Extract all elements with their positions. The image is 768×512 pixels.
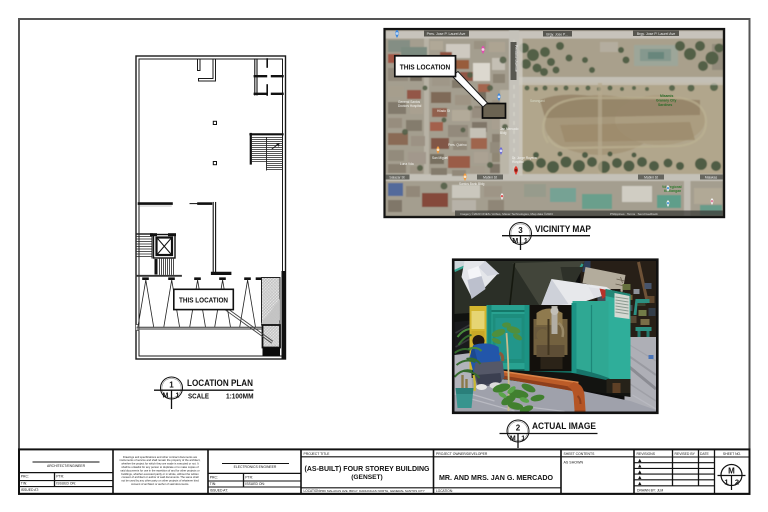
svg-text:Drawings and specifications an: Drawings and specifications and other co… [123, 455, 198, 459]
svg-text:M: M [512, 238, 518, 245]
svg-text:Hospital: Hospital [512, 160, 524, 164]
svg-text:PTR:: PTR: [245, 475, 253, 479]
svg-text:TIN:: TIN: [210, 482, 216, 486]
svg-text:THIS LOCATION: THIS LOCATION [400, 62, 451, 71]
svg-text:1: 1 [169, 381, 174, 390]
svg-text:Santos Bank Bldg: Santos Bank Bldg [459, 182, 485, 186]
svg-text:LOCATION PLAN: LOCATION PLAN [187, 378, 253, 389]
svg-text:Pres. Quirino: Pres. Quirino [448, 143, 467, 147]
svg-text:TIN:: TIN: [21, 482, 27, 486]
svg-text:Malakas: Malakas [705, 176, 718, 180]
svg-text:DATE: DATE [700, 452, 710, 456]
svg-text:Luna Vda: Luna Vda [400, 162, 414, 166]
svg-text:Pendatun Avenue: Pendatun Avenue [514, 45, 518, 72]
svg-text:2: 2 [516, 424, 521, 433]
svg-text:Bldg: Bldg [500, 131, 507, 135]
svg-text:PRK MALAKAS AVE. BRGY. DADIANG: PRK MALAKAS AVE. BRGY. DADIANGAS NORTH, … [320, 489, 425, 493]
svg-text:San Miguel: San Miguel [432, 156, 448, 160]
svg-text:REVISIONS: REVISIONS [637, 452, 656, 456]
svg-text:SHEET NO.: SHEET NO. [723, 452, 741, 456]
svg-text:PRC:: PRC: [21, 475, 29, 479]
svg-text:Brgy. Jose P...: Brgy. Jose P... [546, 32, 567, 36]
svg-text:Mabini St: Mabini St [644, 176, 658, 180]
svg-text:ISSUED ON:: ISSUED ON: [56, 482, 76, 486]
svg-text:LOCATION:: LOCATION: [304, 489, 321, 493]
svg-text:1: 1 [524, 238, 528, 245]
svg-text:ACTUAL IMAGE: ACTUAL IMAGE [532, 421, 596, 431]
svg-text:DRAWN BY: JLM: DRAWN BY: JLM [637, 489, 663, 493]
svg-text:(GENSET): (GENSET) [351, 474, 383, 481]
svg-text:PTR:: PTR: [56, 475, 64, 479]
svg-text:consent of architect or author: consent of architect or author of said d… [131, 482, 189, 486]
svg-text:not be used by any other party: not be used by any other party on other … [121, 479, 199, 483]
svg-text:THIS LOCATION: THIS LOCATION [179, 297, 228, 304]
svg-text:Philippines Terms Send fee: Philippines Terms Send feedback [610, 212, 658, 216]
svg-text:Salazar St: Salazar St [389, 176, 404, 180]
svg-text:SCALE: SCALE [188, 392, 209, 401]
svg-text:whether the project for which: whether the project for which they are m… [121, 462, 198, 466]
svg-text:PROJECT OWNER/DEVELOPER: PROJECT OWNER/DEVELOPER [436, 452, 488, 456]
svg-text:Sarangani: Sarangani [530, 99, 545, 103]
svg-text:ELECTRONICS ENGINEER: ELECTRONICS ENGINEER [234, 465, 277, 469]
svg-text:buildings, whether executed pa: buildings, whether executed partly or in… [121, 472, 199, 476]
svg-text:AS SHOWN: AS SHOWN [564, 461, 584, 465]
svg-text:Sardines: Sardines [658, 103, 672, 107]
svg-text:SHEET CONTENTS: SHEET CONTENTS [564, 452, 596, 456]
svg-text:Doctors Hospital: Doctors Hospital [398, 104, 422, 108]
svg-text:shall be unlawful for any pers: shall be unlawful for any person to dupl… [121, 465, 198, 469]
svg-text:PRC:: PRC: [210, 475, 218, 479]
svg-text:Kalilangan: Kalilangan [664, 189, 681, 193]
svg-text:Hilado St: Hilado St [437, 109, 450, 113]
svg-text:said documents for use in the: said documents for use in the repetition… [120, 468, 199, 472]
svg-text:Granary City: Granary City [656, 99, 676, 103]
svg-text:Brgy. Jose P. Laurel Ave: Brgy. Jose P. Laurel Ave [637, 32, 676, 36]
svg-text:1: 1 [521, 436, 525, 443]
svg-text:ISSUED AT:: ISSUED AT: [21, 488, 39, 492]
svg-text:Misamis: Misamis [660, 94, 673, 98]
svg-text:ARCHITECT/ENGINEER: ARCHITECT/ENGINEER [47, 464, 86, 468]
svg-text:Mabini St: Mabini St [483, 176, 497, 180]
svg-text:1:100MM: 1:100MM [226, 392, 254, 401]
svg-text:consent of architect or author: consent of architect or author of said d… [121, 475, 198, 479]
svg-text:VICINITY MAP: VICINITY MAP [535, 224, 591, 234]
svg-text:PROJECT TITLE: PROJECT TITLE [304, 452, 331, 456]
svg-text:M: M [510, 436, 516, 443]
svg-text:Imagery ©2023 CNES / Airbus, M: Imagery ©2023 CNES / Airbus, Maxar Techn… [460, 212, 553, 216]
svg-text:instruments of service and sha: instruments of service and shall remain … [120, 458, 201, 462]
svg-text:M: M [162, 393, 168, 400]
svg-text:1: 1 [175, 393, 179, 400]
svg-text:2: 2 [735, 478, 739, 487]
svg-text:1: 1 [724, 478, 728, 487]
svg-text:▲: ▲ [637, 481, 643, 487]
svg-text:MR. AND MRS. JAN G. MERCADO: MR. AND MRS. JAN G. MERCADO [439, 475, 554, 482]
svg-text:Pres. Jose P. Laurel Ave: Pres. Jose P. Laurel Ave [427, 32, 466, 36]
svg-text:ISSUED ON:: ISSUED ON: [245, 482, 265, 486]
svg-text:M: M [728, 467, 735, 476]
svg-text:LOCATION:: LOCATION: [436, 489, 453, 493]
svg-text:(AS-BUILT) FOUR STOREY BUILDIN: (AS-BUILT) FOUR STOREY BUILDING [305, 466, 431, 473]
svg-text:3: 3 [518, 226, 523, 235]
svg-text:REVISED BY: REVISED BY [675, 452, 696, 456]
svg-text:ISSUED AT:: ISSUED AT: [210, 488, 228, 492]
